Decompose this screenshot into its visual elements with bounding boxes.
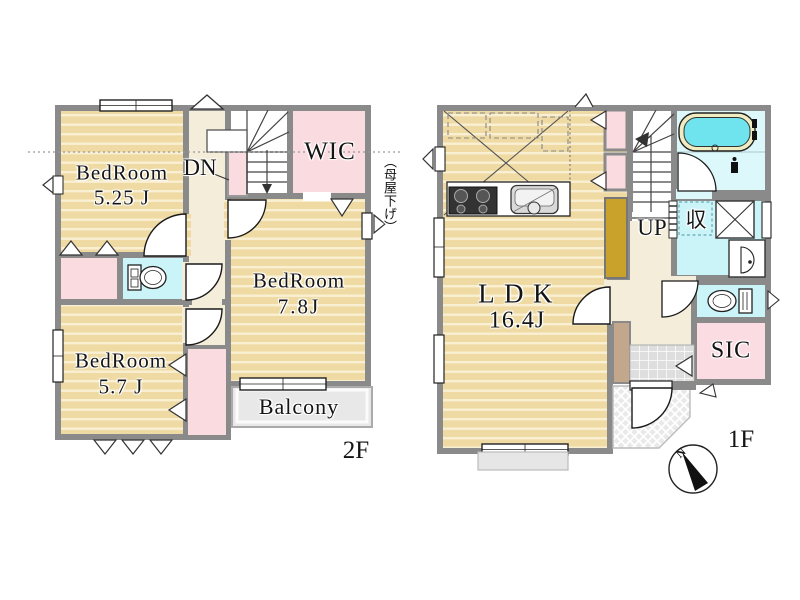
roof-vent-mark-2f bbox=[191, 95, 223, 109]
sic-door-mark-2 bbox=[700, 384, 716, 397]
window-washroom bbox=[762, 202, 771, 238]
floor-plan-1f bbox=[423, 94, 779, 493]
hall-opening-2f bbox=[192, 298, 222, 307]
label-ldk-area: 16.4J bbox=[489, 308, 545, 335]
label-ldk-name: LDK bbox=[478, 279, 562, 310]
wall-stub bbox=[672, 381, 696, 390]
label-sic: SIC bbox=[711, 338, 751, 365]
closet-2f-right bbox=[186, 347, 228, 437]
stair-landing-2f bbox=[207, 130, 247, 152]
window-right-bedroom-7-8j bbox=[362, 213, 372, 239]
tall-cabinet-olive bbox=[605, 198, 627, 278]
roof-vent-mark-1f bbox=[575, 94, 593, 107]
closet-2f-left bbox=[58, 255, 120, 302]
label-bedroom-a-area: 5.25 J bbox=[94, 186, 150, 211]
label-floor-1f: 1F bbox=[728, 426, 754, 454]
label-balcony: Balcony bbox=[259, 394, 339, 420]
label-floor-2f: 2F bbox=[343, 437, 369, 465]
sink-icon bbox=[511, 186, 558, 215]
label-roof-note: （母屋下げ） bbox=[380, 155, 399, 233]
stair-handrail bbox=[669, 201, 677, 238]
label-bedroom-c-name: BedRoom bbox=[75, 349, 167, 374]
label-bedroom-b-name: BedRoom bbox=[253, 269, 345, 294]
label-bedroom-b-area: 7.8J bbox=[278, 295, 320, 320]
label-stairs-up: UP bbox=[637, 215, 666, 241]
washer-space-icon bbox=[716, 201, 754, 238]
label-storage: 収 bbox=[686, 204, 707, 234]
pantry-niche-2 bbox=[605, 154, 627, 190]
pantry-niche-1 bbox=[605, 110, 627, 150]
awning-window-mark-kitchen bbox=[423, 149, 433, 169]
window-ldk-left-1 bbox=[434, 218, 444, 277]
label-bedroom-c-area: 5.7 J bbox=[99, 375, 144, 400]
window-kitchen-left bbox=[435, 147, 445, 171]
entry-step-strip bbox=[613, 322, 630, 383]
awning-window-mark-left-2f bbox=[43, 177, 53, 193]
label-bedroom-a-name: BedRoom bbox=[76, 161, 168, 186]
floor-plan-page: BedRoom 5.25 J DN WIC （母屋下げ） BedRoom 7.8… bbox=[0, 0, 800, 600]
label-wic: WIC bbox=[304, 138, 356, 166]
awning-window-mark-toilet bbox=[768, 291, 779, 309]
label-stairs-dn: DN bbox=[183, 155, 216, 181]
vanity-sink-icon bbox=[729, 240, 765, 277]
window-ldk-left-2 bbox=[434, 335, 444, 383]
toilet-icon-1f bbox=[708, 289, 752, 313]
stove-icon bbox=[449, 187, 497, 214]
awning-window-marks-bottom-2f bbox=[94, 440, 172, 454]
door-gap bbox=[303, 192, 331, 201]
floor-plan-drawing bbox=[0, 0, 800, 600]
terrace-step bbox=[478, 452, 568, 470]
toilet-icon-2f bbox=[128, 265, 166, 290]
window-left-small-2f bbox=[53, 176, 63, 194]
stair-niche-2f bbox=[228, 150, 247, 196]
